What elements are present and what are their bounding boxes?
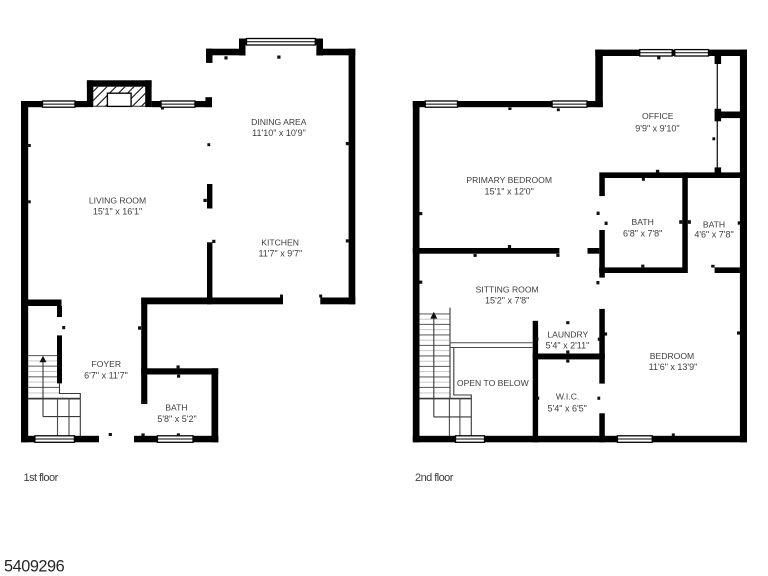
svg-text:BATH: BATH	[703, 219, 725, 229]
svg-text:11'7" x 9'7": 11'7" x 9'7"	[258, 249, 302, 259]
svg-text:W.I.C.: W.I.C.	[556, 391, 579, 401]
svg-text:FOYER: FOYER	[91, 359, 121, 369]
svg-text:1st floor: 1st floor	[24, 472, 59, 484]
svg-text:OFFICE: OFFICE	[642, 111, 674, 121]
svg-text:4'6" x 7'8": 4'6" x 7'8"	[694, 229, 733, 239]
svg-text:5'8" x 5'2": 5'8" x 5'2"	[157, 414, 196, 424]
svg-text:OPEN TO BELOW: OPEN TO BELOW	[457, 378, 530, 388]
svg-text:SITTING ROOM: SITTING ROOM	[476, 285, 539, 295]
svg-text:BATH: BATH	[632, 217, 654, 227]
svg-text:11'6" x 13'9": 11'6" x 13'9"	[649, 362, 698, 372]
svg-text:5409296: 5409296	[4, 557, 65, 575]
svg-text:LIVING ROOM: LIVING ROOM	[89, 196, 146, 206]
svg-text:11'10" x 10'9": 11'10" x 10'9"	[252, 128, 306, 138]
svg-text:6'8" x 7'8": 6'8" x 7'8"	[623, 229, 662, 239]
svg-text:15'2" x 7'8": 15'2" x 7'8"	[485, 296, 529, 306]
svg-text:LAUNDRY: LAUNDRY	[547, 330, 588, 340]
svg-text:DINING AREA: DINING AREA	[251, 117, 307, 127]
svg-text:PRIMARY BEDROOM: PRIMARY BEDROOM	[466, 175, 552, 185]
svg-text:BATH: BATH	[165, 403, 187, 413]
svg-text:2nd floor: 2nd floor	[415, 472, 454, 484]
svg-text:5'4" x 2'11": 5'4" x 2'11"	[546, 341, 590, 351]
svg-text:15'1" x 12'0": 15'1" x 12'0"	[485, 187, 534, 197]
svg-text:15'1" x 16'1": 15'1" x 16'1"	[93, 207, 142, 217]
svg-text:BEDROOM: BEDROOM	[650, 351, 694, 361]
svg-text:KITCHEN: KITCHEN	[261, 237, 299, 247]
svg-text:5'4" x 6'5": 5'4" x 6'5"	[548, 403, 587, 413]
svg-text:6'7" x 11'7": 6'7" x 11'7"	[84, 371, 128, 381]
svg-text:9'9" x 9'10": 9'9" x 9'10"	[635, 124, 679, 134]
